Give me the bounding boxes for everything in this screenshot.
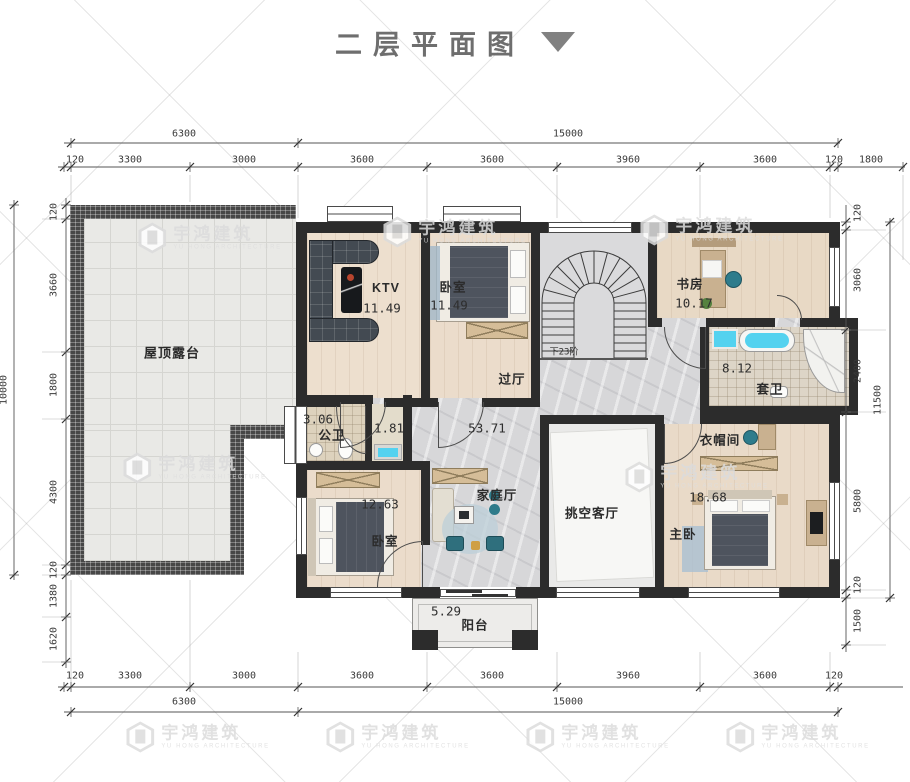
- room-label-balcony: 阳台: [461, 615, 488, 634]
- dim-label: 3600: [480, 155, 504, 166]
- page-title: 二层平面图: [335, 23, 525, 62]
- watermark-en: YU HONG ARCHITECTURE: [761, 744, 869, 751]
- yuhong-logo-icon: [123, 453, 151, 484]
- dim-label: 3600: [350, 155, 374, 166]
- watermark: 宇鸿建筑 YU HONG ARCHITECTURE: [526, 722, 669, 753]
- room-area-ensuite: 8.12: [722, 361, 752, 376]
- dim-label: 3960: [616, 671, 640, 682]
- dim-label: 120: [853, 576, 864, 594]
- watermark-cn: 宇鸿建筑: [660, 463, 768, 483]
- room-label-public-bath: 公卫: [318, 425, 345, 444]
- room-area-hall: 53.71: [468, 421, 506, 436]
- dim-label: 1800: [49, 373, 60, 397]
- watermark-text: 宇鸿建筑 YU HONG ARCHITECTURE: [675, 216, 783, 244]
- watermark: 宇鸿建筑 YU HONG ARCHITECTURE: [123, 453, 266, 484]
- dim-label: 3300: [118, 155, 142, 166]
- room-area-ktv: 11.49: [363, 301, 401, 316]
- watermark-text: 宇鸿建筑 YU HONG ARCHITECTURE: [418, 218, 526, 246]
- yuhong-logo-icon: [383, 217, 411, 248]
- dim-label: 3600: [480, 671, 504, 682]
- room-label-ensuite: 套卫: [756, 379, 783, 398]
- watermark-cn: 宇鸿建筑: [158, 454, 266, 474]
- yuhong-logo-icon: [326, 722, 354, 753]
- dim-label: 120: [49, 561, 60, 579]
- watermark-en: YU HONG ARCHITECTURE: [675, 237, 783, 244]
- watermark-text: 宇鸿建筑 YU HONG ARCHITECTURE: [761, 723, 869, 751]
- room-label-family: 家庭厅: [477, 485, 518, 504]
- dim-label: 2400: [853, 359, 864, 383]
- watermark-cn: 宇鸿建筑: [761, 723, 869, 743]
- room-label-cloak: 衣帽间: [700, 430, 741, 449]
- watermark-cn: 宇鸿建筑: [561, 723, 669, 743]
- watermark-text: 宇鸿建筑 YU HONG ARCHITECTURE: [173, 224, 281, 252]
- watermark-en: YU HONG ARCHITECTURE: [361, 744, 469, 751]
- room-label-void-living: 挑空客厅: [565, 503, 619, 522]
- watermark-cn: 宇鸿建筑: [418, 218, 526, 238]
- watermark-en: YU HONG ARCHITECTURE: [158, 475, 266, 482]
- yuhong-logo-icon: [138, 223, 166, 254]
- watermark: 宇鸿建筑 YU HONG ARCHITECTURE: [326, 722, 469, 753]
- dim-label: 6300: [172, 129, 196, 140]
- dim-label: 120: [853, 204, 864, 222]
- dim-label: 120: [66, 155, 84, 166]
- room-label-bedroom-bottom: 卧室: [371, 531, 398, 550]
- dim-label: 120: [825, 155, 843, 166]
- dim-label: 1500: [853, 609, 864, 633]
- room-area-bedroom-top: 11.49: [430, 298, 468, 313]
- room-area-master: 18.68: [689, 490, 727, 505]
- watermark-text: 宇鸿建筑 YU HONG ARCHITECTURE: [361, 723, 469, 751]
- yuhong-logo-icon: [625, 462, 653, 493]
- watermark-text: 宇鸿建筑 YU HONG ARCHITECTURE: [158, 454, 266, 482]
- dim-label: 6300: [172, 697, 196, 708]
- dim-label: 3600: [753, 671, 777, 682]
- watermark: 宇鸿建筑 YU HONG ARCHITECTURE: [640, 215, 783, 246]
- dim-label: 3600: [350, 671, 374, 682]
- room-label-bedroom-top: 卧室: [439, 277, 466, 296]
- yuhong-logo-icon: [726, 722, 754, 753]
- watermark-en: YU HONG ARCHITECTURE: [161, 744, 269, 751]
- watermark: 宇鸿建筑 YU HONG ARCHITECTURE: [126, 722, 269, 753]
- dim-label: 3060: [853, 268, 864, 292]
- watermark: 宇鸿建筑 YU HONG ARCHITECTURE: [726, 722, 869, 753]
- room-label-master: 主卧: [669, 524, 696, 543]
- room-label-terrace: 屋顶露台: [144, 343, 200, 362]
- watermark-cn: 宇鸿建筑: [675, 216, 783, 236]
- room-area-study: 10.17: [675, 296, 713, 311]
- watermark-en: YU HONG ARCHITECTURE: [561, 744, 669, 751]
- room-area-bedroom-bottom: 12.63: [361, 497, 399, 512]
- dim-label: 15000: [553, 697, 583, 708]
- dim-label: 4300: [49, 480, 60, 504]
- dim-label: 3300: [118, 671, 142, 682]
- room-label-study: 书房: [676, 274, 703, 293]
- watermark-text: 宇鸿建筑 YU HONG ARCHITECTURE: [161, 723, 269, 751]
- dim-label: 3000: [232, 671, 256, 682]
- dim-label: 3960: [616, 155, 640, 166]
- dim-label: 3600: [753, 155, 777, 166]
- dim-label: 5800: [853, 489, 864, 513]
- dim-label: 1620: [49, 627, 60, 651]
- dim-label: 11500: [873, 385, 884, 415]
- watermark: 宇鸿建筑 YU HONG ARCHITECTURE: [138, 223, 281, 254]
- stairs-note: 下23阶: [550, 345, 579, 358]
- dim-label: 1800: [859, 155, 883, 166]
- yuhong-logo-icon: [126, 722, 154, 753]
- room-label-ktv: KTV: [372, 281, 400, 295]
- watermark-cn: 宇鸿建筑: [161, 723, 269, 743]
- dim-label: 120: [49, 203, 60, 221]
- watermark-text: 宇鸿建筑 YU HONG ARCHITECTURE: [660, 463, 768, 491]
- title-row: 二层平面图: [0, 20, 910, 64]
- watermark-text: 宇鸿建筑 YU HONG ARCHITECTURE: [561, 723, 669, 751]
- watermark-cn: 宇鸿建筑: [361, 723, 469, 743]
- watermark-en: YU HONG ARCHITECTURE: [418, 239, 526, 246]
- dim-label: 3000: [232, 155, 256, 166]
- dim-label: 15000: [553, 129, 583, 140]
- dropdown-triangle-icon[interactable]: [541, 32, 575, 52]
- room-label-hall: 过厅: [498, 369, 525, 388]
- dim-label: 120: [66, 671, 84, 682]
- watermark-en: YU HONG ARCHITECTURE: [173, 245, 281, 252]
- watermark: 宇鸿建筑 YU HONG ARCHITECTURE: [625, 462, 768, 493]
- floorplan-canvas: 二层平面图: [0, 0, 910, 782]
- room-area-balcony: 5.29: [431, 604, 461, 619]
- yuhong-logo-icon: [640, 215, 668, 246]
- watermark-cn: 宇鸿建筑: [173, 224, 281, 244]
- yuhong-logo-icon: [526, 722, 554, 753]
- dim-label: 1380: [49, 584, 60, 608]
- dim-label: 10000: [0, 375, 10, 405]
- dim-label: 3660: [49, 273, 60, 297]
- dim-label: 120: [825, 671, 843, 682]
- room-area-wash: 1.81: [374, 421, 404, 436]
- watermark: 宇鸿建筑 YU HONG ARCHITECTURE: [383, 217, 526, 248]
